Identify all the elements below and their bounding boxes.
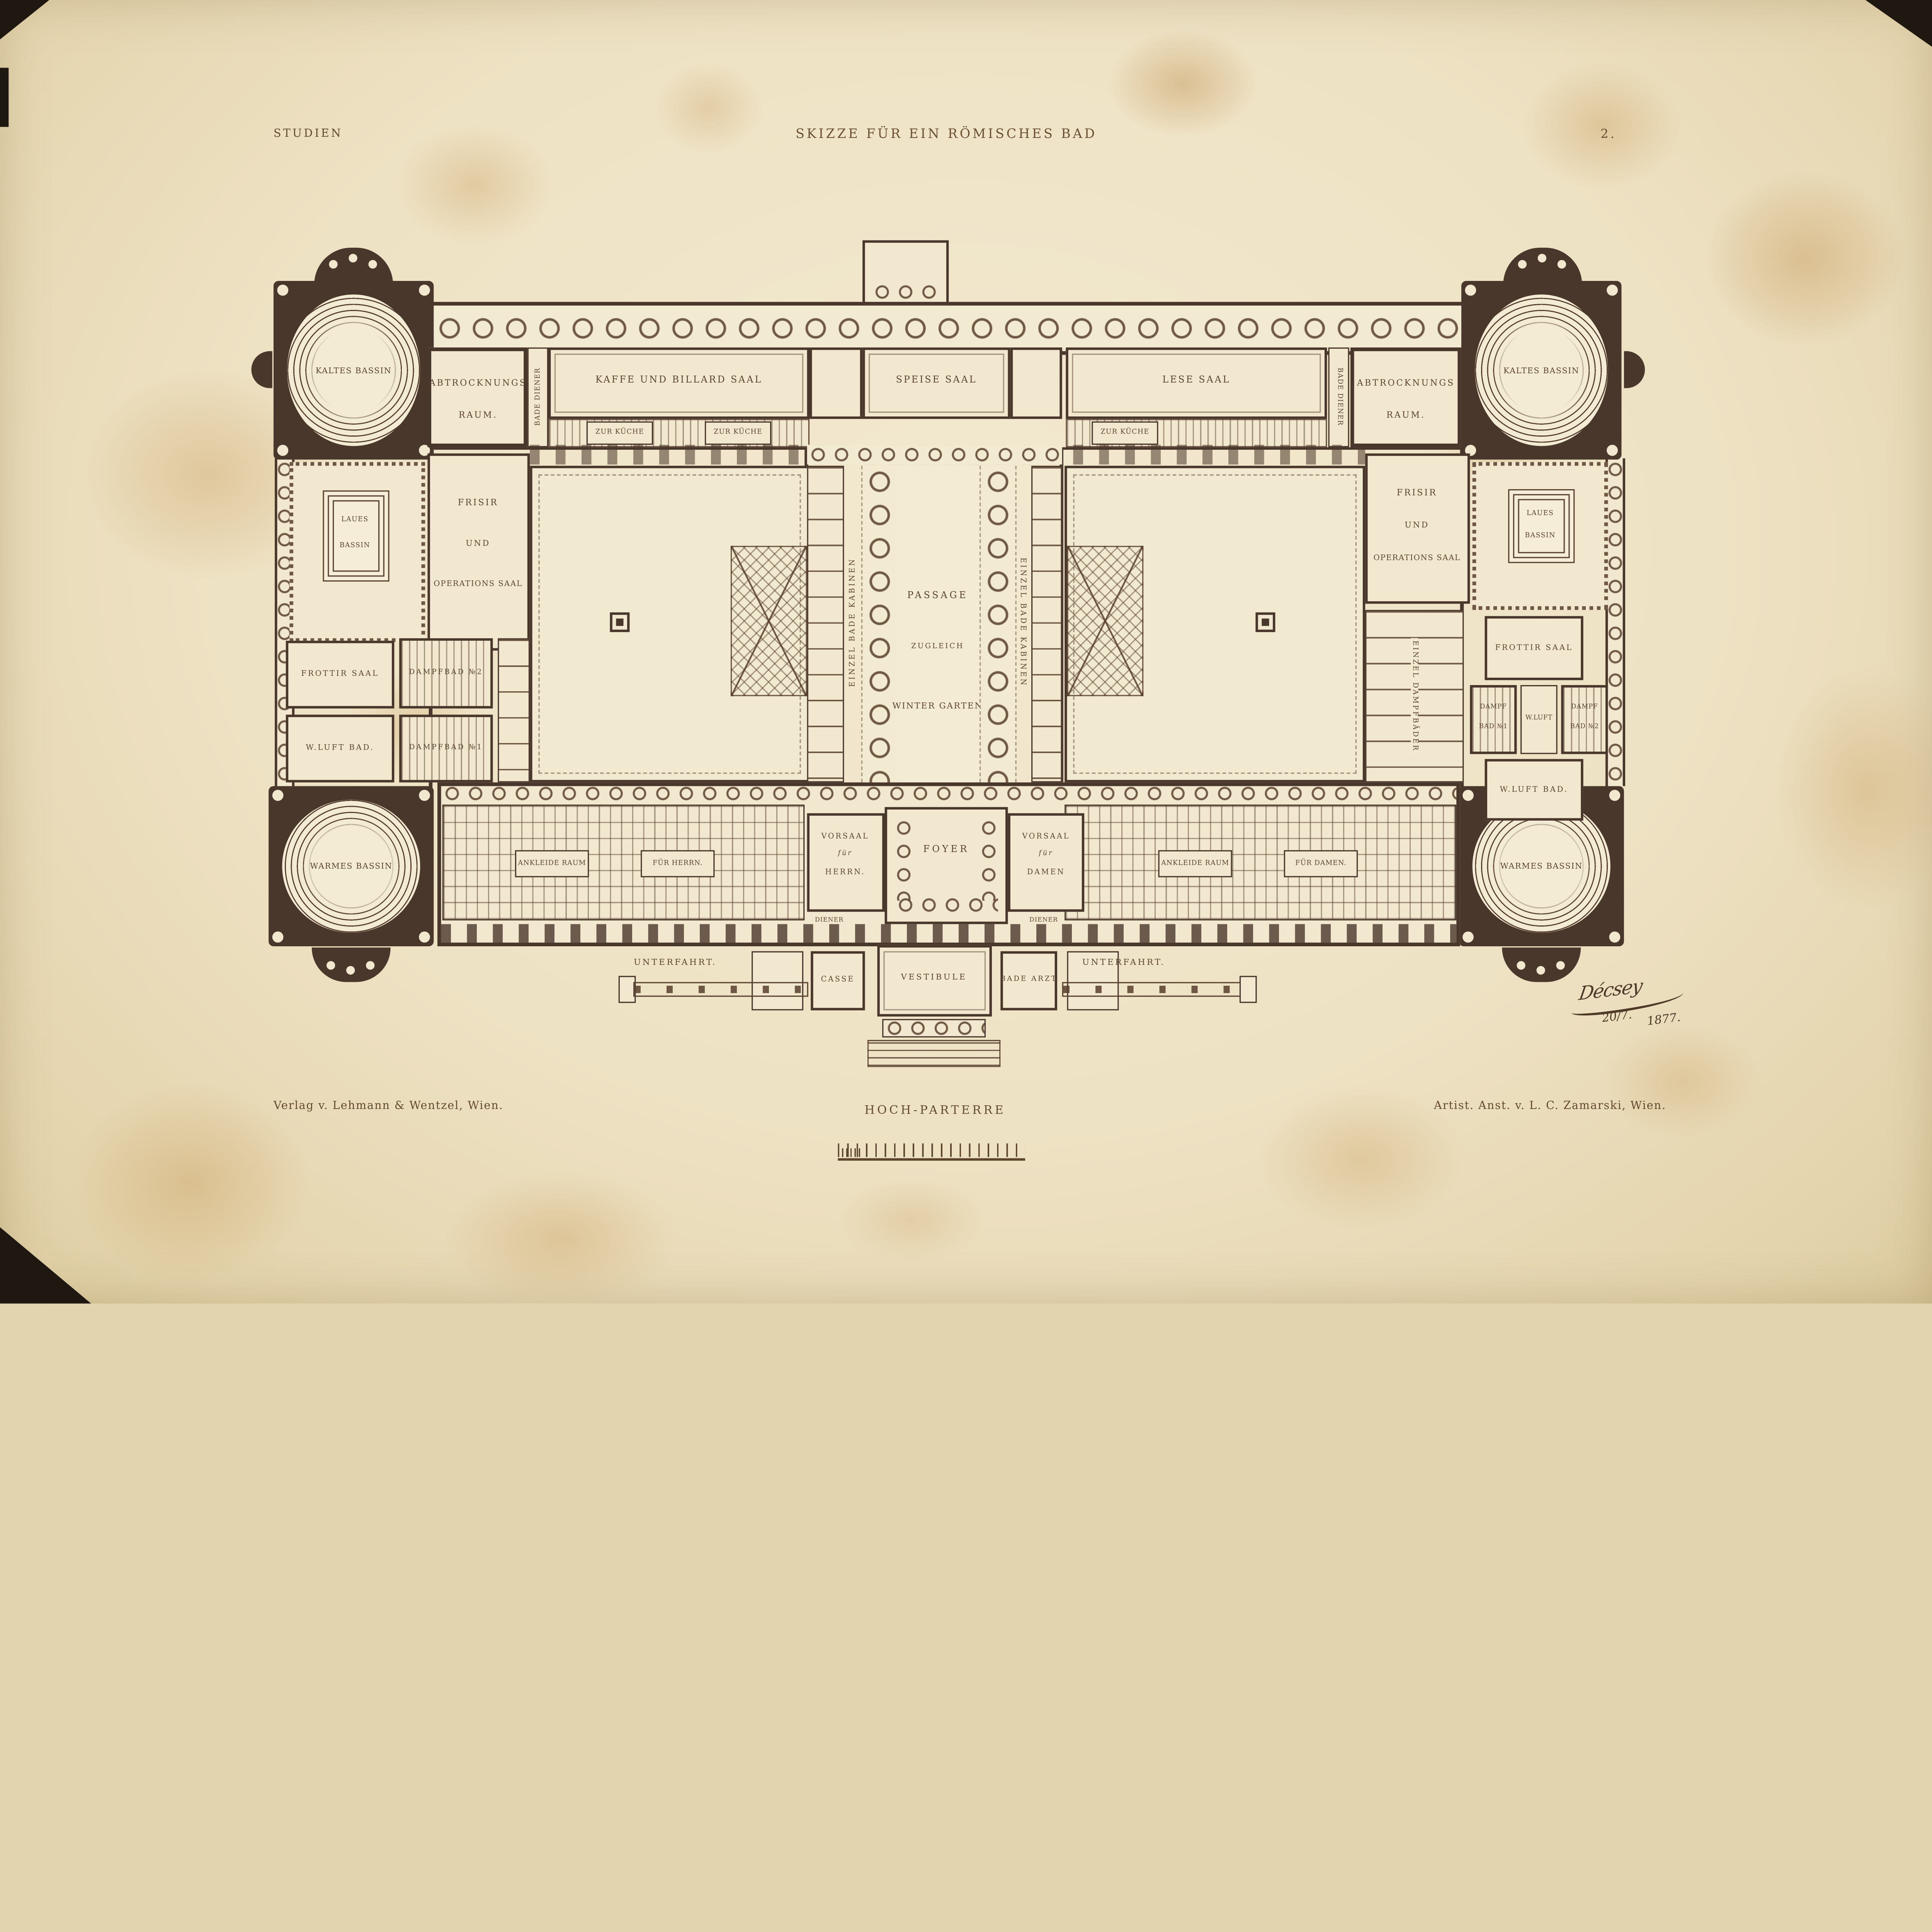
room-label: W.LUFT BAD. bbox=[1500, 786, 1568, 794]
hall-ornament bbox=[1255, 612, 1275, 632]
room-label: HERRN. bbox=[825, 868, 865, 876]
dressing-stalls-women bbox=[1065, 804, 1456, 920]
scan-edge-left bbox=[0, 68, 9, 127]
ramp-endblock bbox=[1240, 976, 1257, 1003]
stain bbox=[1706, 172, 1903, 345]
scale-ticks bbox=[838, 1143, 1025, 1157]
room-label: FROTTIR SAAL bbox=[301, 670, 379, 678]
entrance-steps bbox=[867, 1040, 1000, 1067]
room-label: KALTES BASSIN bbox=[316, 366, 392, 376]
foyer-columns-west bbox=[895, 817, 913, 901]
room-anteroom-men bbox=[807, 813, 885, 912]
room-label: RAUM. bbox=[459, 410, 498, 420]
skylight-west bbox=[731, 546, 807, 696]
room-label: FÜR HERRN. bbox=[653, 860, 703, 867]
room-label: DAMPFBAD №1 bbox=[409, 744, 483, 752]
passage-head-colonnade bbox=[807, 445, 1062, 464]
north-portico bbox=[862, 240, 949, 304]
room-label: ANKLEIDE RAUM bbox=[1161, 860, 1229, 867]
room-hairdressing-left bbox=[428, 453, 530, 650]
room-label: SPEISE SAAL bbox=[896, 374, 977, 385]
stain bbox=[838, 1177, 986, 1263]
south-wing-gallery bbox=[441, 924, 1457, 943]
scale-bar bbox=[838, 1143, 1025, 1161]
room-label: UND bbox=[1405, 520, 1429, 530]
plate-number: 2. bbox=[1600, 128, 1616, 142]
carriage-ramp-west bbox=[633, 982, 808, 997]
corridor-label: EINZEL BADE KABINEN bbox=[848, 558, 857, 687]
pool-tepid-right bbox=[1508, 489, 1575, 563]
room-label: KAFFE UND BILLARD SAAL bbox=[595, 374, 762, 385]
stair-room bbox=[1010, 347, 1062, 419]
room-label: ABTROCKNUNGS bbox=[1357, 378, 1455, 388]
plate-title: SKIZZE FÜR EIN RÖMISCHES BAD bbox=[796, 127, 1097, 141]
pavilion-porch bbox=[1503, 248, 1582, 285]
room-label: BASSIN bbox=[1525, 532, 1555, 540]
pool-tepid-left bbox=[323, 490, 389, 582]
room-label: RAUM. bbox=[1386, 410, 1425, 420]
east-gallery bbox=[1605, 458, 1625, 786]
foyer-columns-south bbox=[895, 896, 998, 914]
room-label: FOYER bbox=[923, 844, 969, 855]
printer-caption: Artist. Anst. v. L. C. Zamarski, Wien. bbox=[1434, 1100, 1666, 1113]
room-label: PASSAGE bbox=[907, 590, 968, 601]
stain bbox=[1109, 31, 1257, 136]
plate-sheet: STUDIEN SKIZZE FÜR EIN RÖMISCHES BAD 2. … bbox=[0, 0, 1932, 1304]
stain bbox=[1522, 61, 1682, 191]
room-label: FROTTIR SAAL bbox=[1495, 644, 1573, 652]
pavilion-porch bbox=[314, 248, 393, 285]
pavilion-porch bbox=[252, 351, 272, 388]
room-label: OPERATIONS SAAL bbox=[434, 580, 522, 588]
room-label: KALTES BASSIN bbox=[1503, 366, 1580, 376]
scan-corner-bottom-left bbox=[0, 1227, 91, 1304]
entrance-portico bbox=[882, 1019, 986, 1037]
room-label: LAUES bbox=[1527, 510, 1554, 517]
passage-colonnade-west bbox=[861, 466, 898, 782]
floor-caption: HOCH-PARTERRE bbox=[864, 1104, 1006, 1117]
room-label: für bbox=[838, 850, 853, 857]
room-label: BADE DIENER bbox=[535, 367, 542, 426]
room-label: ZUR KÜCHE bbox=[714, 429, 762, 436]
room-steam-bath-2-right bbox=[1561, 685, 1608, 754]
room-label: VORSAAL bbox=[821, 832, 869, 841]
stain bbox=[74, 1084, 308, 1281]
pavilion-porch bbox=[1502, 947, 1581, 982]
series-label: STUDIEN bbox=[274, 128, 343, 141]
room-label: ZUR KÜCHE bbox=[1100, 429, 1149, 436]
hall-ornament bbox=[610, 612, 629, 632]
room-label: UND bbox=[466, 538, 490, 548]
scale-subticks bbox=[838, 1148, 862, 1157]
room-label: DAMPFBAD №2 bbox=[409, 669, 483, 677]
stain bbox=[1774, 665, 1932, 912]
ramp-label: UNTERFAHRT. bbox=[1082, 957, 1165, 968]
north-colonnade bbox=[434, 302, 1461, 355]
bath-cabins-east bbox=[1031, 466, 1062, 782]
side-room bbox=[752, 951, 803, 1010]
room-drying-left bbox=[428, 347, 527, 447]
room-label: FRISIR bbox=[1397, 488, 1437, 498]
bath-cabins-west bbox=[807, 466, 844, 782]
room-label: DAMPF bbox=[1571, 704, 1598, 711]
south-wing-colonnade bbox=[441, 785, 1457, 802]
corridor-label: EINZEL BADE KABINEN bbox=[1019, 558, 1027, 687]
room-label: BASSIN bbox=[340, 542, 370, 549]
room-label: CASSE bbox=[821, 975, 855, 984]
room-label: VESTIBULE bbox=[901, 972, 967, 982]
publisher-caption: Verlag v. Lehmann & Wentzel, Wien. bbox=[274, 1100, 503, 1113]
pavilion-porch bbox=[312, 947, 391, 982]
room-label: BAD №2 bbox=[1570, 723, 1599, 731]
winter-garden-passage bbox=[896, 466, 980, 782]
room-label: ANKLEIDE RAUM bbox=[518, 860, 586, 867]
room-drying-right bbox=[1350, 347, 1461, 447]
room-label: BADE ARZT bbox=[1000, 976, 1058, 983]
room-label: WINTER GARTEN bbox=[892, 701, 983, 711]
room-label: BADE DIENER bbox=[1336, 367, 1343, 426]
room-label: VORSAAL bbox=[1022, 832, 1070, 841]
room-label: ZUGLEICH bbox=[911, 643, 964, 651]
room-label: DAMPF bbox=[1480, 704, 1507, 711]
skylight-east bbox=[1067, 546, 1143, 696]
room-label: WARMES BASSIN bbox=[310, 861, 392, 871]
room-label: BAD №1 bbox=[1479, 723, 1508, 731]
stain bbox=[444, 1170, 678, 1303]
room-label: für bbox=[1039, 850, 1053, 857]
pavilion-porch bbox=[1624, 351, 1645, 388]
room-label: LAUES bbox=[341, 516, 368, 524]
room-label: OPERATIONS SAAL bbox=[1374, 554, 1461, 562]
room-steam-bath-1-right bbox=[1470, 685, 1517, 754]
scan-corner-top-right bbox=[1866, 0, 1932, 47]
foyer-columns-east bbox=[980, 817, 998, 901]
room-label: W.LUFT bbox=[1526, 714, 1553, 722]
room-label: DIENER bbox=[815, 917, 844, 924]
room-label: WARMES BASSIN bbox=[1500, 861, 1583, 871]
portico-columns bbox=[871, 285, 940, 299]
room-label: DAMEN bbox=[1027, 868, 1065, 876]
room-label: ABTROCKNUNGS bbox=[429, 378, 527, 388]
passage-colonnade-east bbox=[980, 466, 1017, 782]
stair-room bbox=[810, 347, 862, 419]
carriage-ramp-east bbox=[1062, 982, 1242, 997]
ramp-label: UNTERFAHRT. bbox=[634, 957, 717, 968]
dressing-stalls-men bbox=[442, 804, 805, 920]
room-label: LESE SAAL bbox=[1162, 374, 1230, 385]
room-label: W.LUFT BAD. bbox=[306, 743, 374, 752]
signature-year: 1877. bbox=[1646, 1011, 1681, 1029]
room-anteroom-women bbox=[1008, 813, 1084, 912]
scan-corner-top-left bbox=[0, 0, 49, 39]
cell-row-left bbox=[498, 638, 530, 782]
room-label: DIENER bbox=[1029, 917, 1058, 924]
room-label: FRISIR bbox=[458, 498, 498, 508]
stain bbox=[653, 61, 764, 154]
corridor-label: EINZEL DAMPFBÄDER bbox=[1411, 638, 1418, 754]
floor-plan: KALTES BASSIN KALTES BASSIN WARMES BASSI… bbox=[269, 216, 1629, 1085]
room-label: FÜR DAMEN. bbox=[1295, 860, 1347, 867]
room-label: ZUR KÜCHE bbox=[595, 429, 644, 436]
